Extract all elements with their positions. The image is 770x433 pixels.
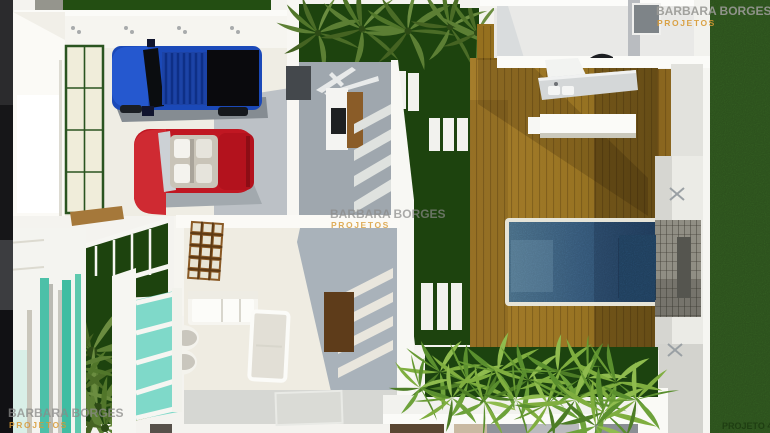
svg-text:PROJETOS: PROJETOS [9, 420, 68, 430]
svg-text:PROJETO 44: PROJETO 44 [722, 421, 770, 431]
svg-text:PROJETOS: PROJETOS [657, 18, 716, 28]
svg-text:PROJETOS: PROJETOS [331, 220, 390, 230]
svg-text:BARBARA BORGES: BARBARA BORGES [330, 207, 446, 221]
svg-text:BARBARA BORGES: BARBARA BORGES [8, 406, 124, 420]
svg-text:BARBARA BORGES: BARBARA BORGES [656, 4, 770, 18]
